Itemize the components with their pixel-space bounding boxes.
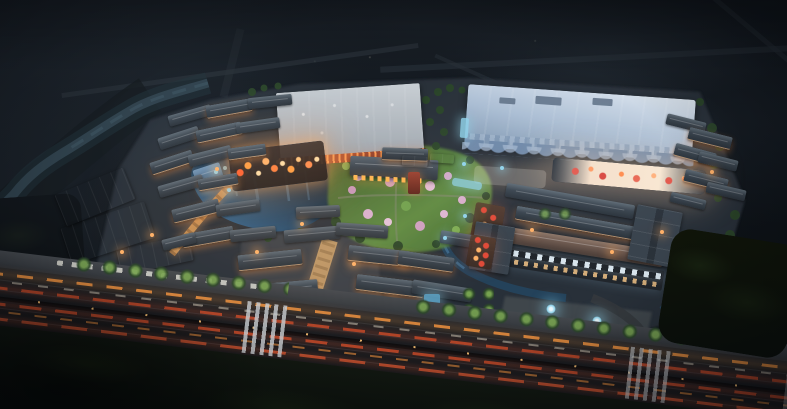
east-forest bbox=[656, 227, 787, 361]
courtyard-light bbox=[150, 233, 154, 237]
fountain bbox=[546, 304, 556, 314]
canopy-light bbox=[227, 188, 231, 192]
courtyard-light bbox=[215, 167, 219, 171]
courtyard-light bbox=[610, 250, 614, 254]
mall-east-cyan-light bbox=[460, 118, 469, 139]
path-light bbox=[463, 214, 467, 218]
red-pagoda bbox=[408, 172, 420, 194]
courtyard-light bbox=[660, 230, 664, 234]
rooftop-unit bbox=[593, 98, 613, 106]
courtyard-light bbox=[300, 222, 304, 226]
courtyard-light bbox=[255, 250, 259, 254]
path-light bbox=[443, 236, 447, 240]
courtyard-light bbox=[710, 170, 714, 174]
building-roof bbox=[296, 205, 341, 219]
courtyard-light bbox=[352, 262, 356, 266]
courtyard-light bbox=[530, 228, 534, 232]
rooftop-unit bbox=[536, 96, 562, 106]
lantern-lane bbox=[465, 234, 496, 270]
rooftop-unit bbox=[499, 97, 515, 104]
aerial-night-render bbox=[0, 0, 787, 409]
courtyard-light bbox=[120, 250, 124, 254]
crosswalk bbox=[242, 301, 288, 357]
hotel-courtyard-trees bbox=[536, 206, 576, 220]
flat-roof-block bbox=[430, 153, 455, 164]
path-light bbox=[500, 166, 504, 170]
flat-roof-block bbox=[402, 155, 429, 167]
crosswalk bbox=[625, 347, 671, 403]
path-light bbox=[462, 162, 466, 166]
